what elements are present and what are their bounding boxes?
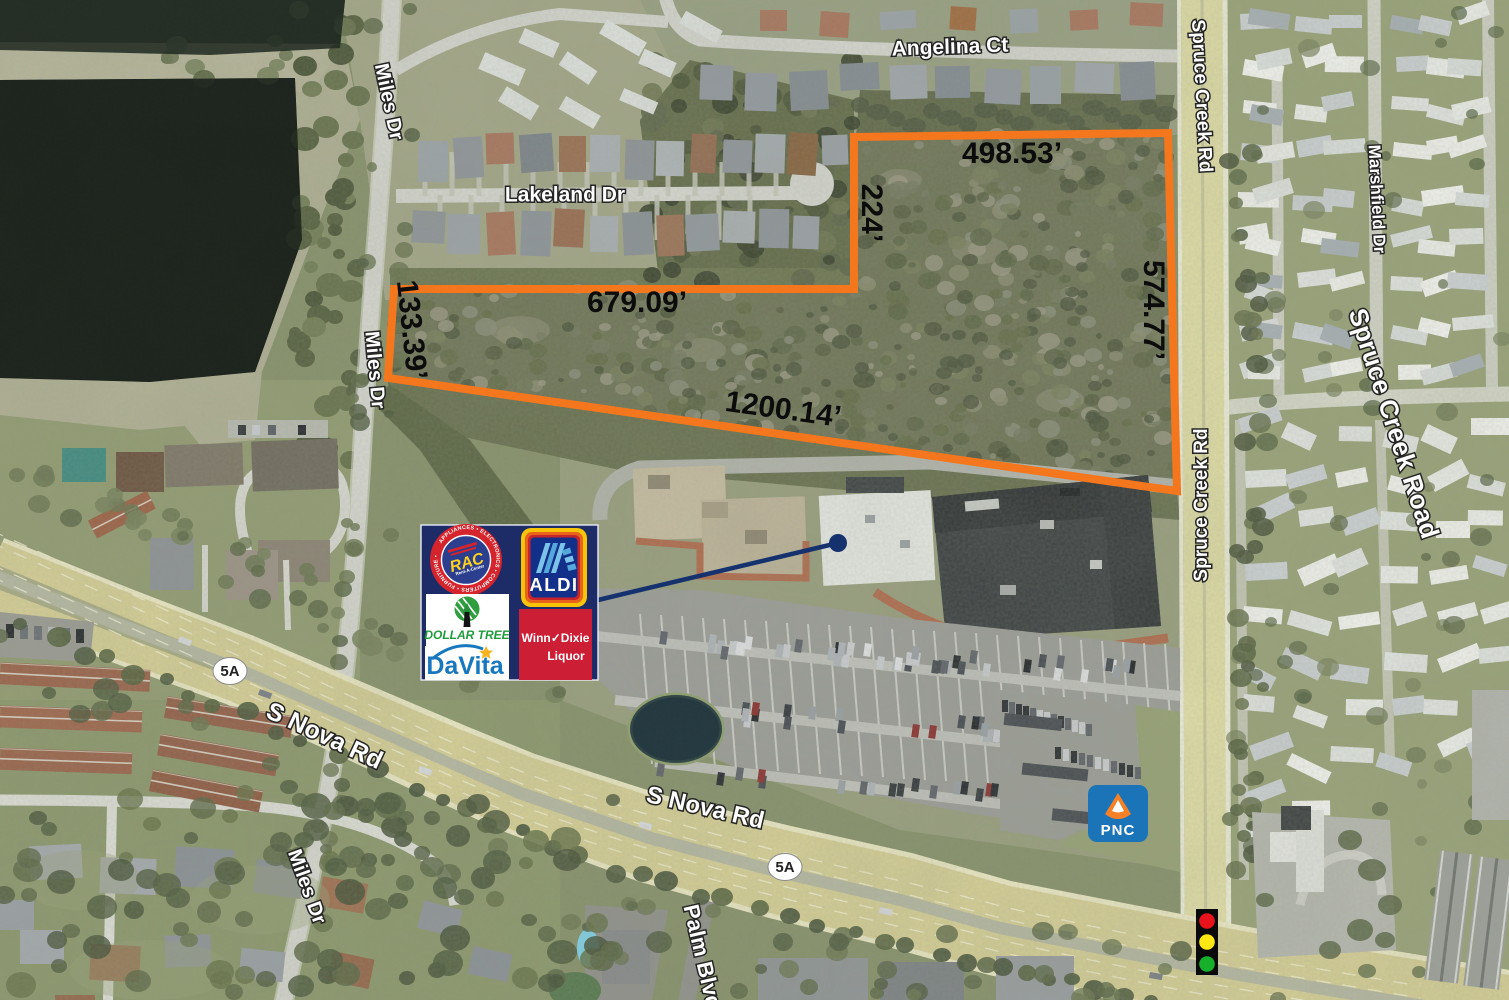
svg-text:5A: 5A — [775, 859, 794, 876]
svg-text:ALDI: ALDI — [529, 574, 578, 595]
svg-text:574.77’: 574.77’ — [1137, 260, 1170, 360]
svg-text:PNC: PNC — [1101, 822, 1136, 839]
svg-text:Angelina Ct: Angelina Ct — [891, 34, 1008, 61]
svg-text:224’: 224’ — [855, 184, 888, 242]
svg-text:Spruce Creek Rd: Spruce Creek Rd — [1191, 428, 1212, 581]
svg-text:5A: 5A — [220, 663, 239, 680]
svg-text:498.53’: 498.53’ — [962, 137, 1062, 170]
svg-text:Lakeland Dr: Lakeland Dr — [505, 184, 625, 207]
svg-text:Winn✓Dixie: Winn✓Dixie — [522, 631, 590, 645]
svg-text:Liquor: Liquor — [547, 649, 585, 663]
svg-text:679.09’: 679.09’ — [587, 286, 687, 319]
svg-text:DOLLAR TREE: DOLLAR TREE — [424, 628, 510, 642]
